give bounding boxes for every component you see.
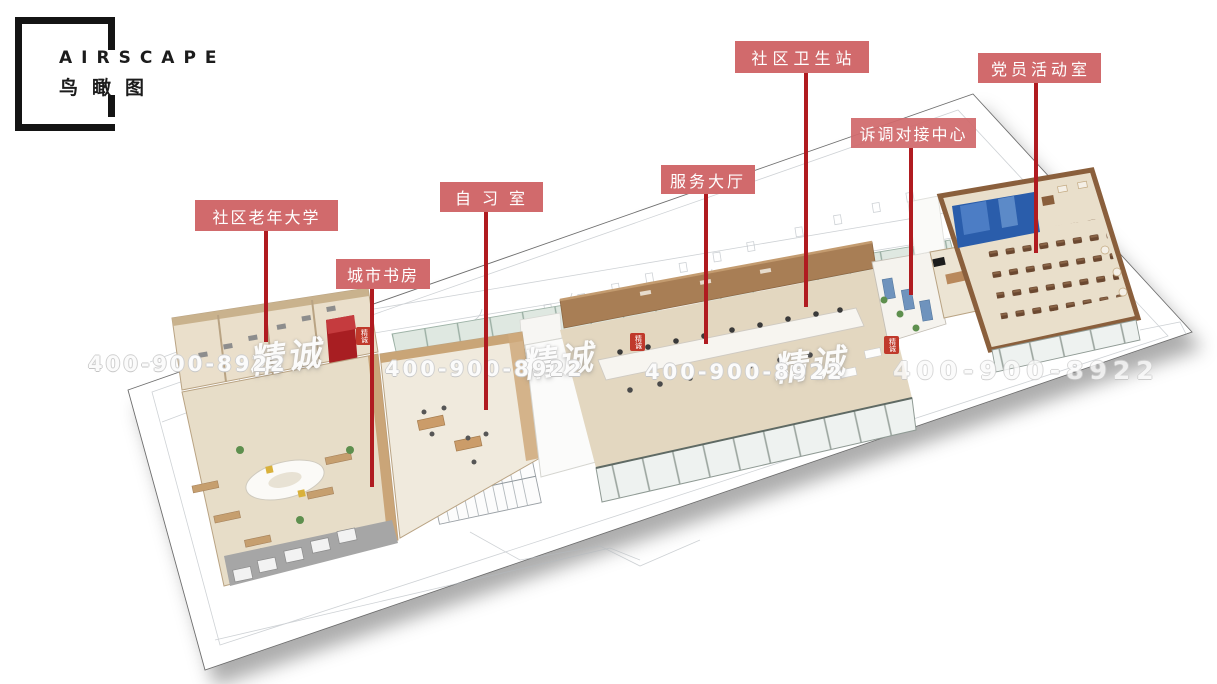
white-fin-wall [908,196,945,255]
logo-subtitle-text: 鸟瞰图 [59,73,279,100]
label-study-room: 自习室 [440,182,543,212]
watermark-phone: 400-900-8922 [645,360,845,384]
logo-frame [108,17,115,50]
leader-line-party-room [1034,83,1038,253]
leader-line-health-station [804,73,808,307]
watermark-seal: 精诚 [356,327,371,345]
leader-line-city-study [370,289,374,487]
leader-line-mediation-center [909,148,913,295]
label-service-hall: 服务大厅 [661,165,755,194]
label-party-room: 党员活动室 [978,53,1101,83]
watermark-phone: 400-900-8922 [88,352,288,376]
label-senior-university: 社区老年大学 [195,200,338,231]
airscape-birdseye-view: 精诚 精诚 精诚 精诚 精诚 精诚 400-900-8922 400-900-8… [0,0,1217,684]
leader-line-study-room [484,212,488,410]
label-mediation-center: 诉调对接中心 [851,118,976,148]
leader-line-service-hall [704,194,708,344]
airscape-logo: AIRSCAPE 鸟瞰图 [15,17,115,117]
watermark-seal: 精诚 [884,336,899,354]
logo-brand-text: AIRSCAPE [59,48,279,68]
label-health-station: 社区卫生站 [735,41,869,73]
watermark-phone: 400-900-8922 [893,356,1160,385]
watermark-seal: 精诚 [630,333,645,351]
label-city-study: 城市书房 [336,259,430,289]
leader-line-senior-university [264,231,268,342]
